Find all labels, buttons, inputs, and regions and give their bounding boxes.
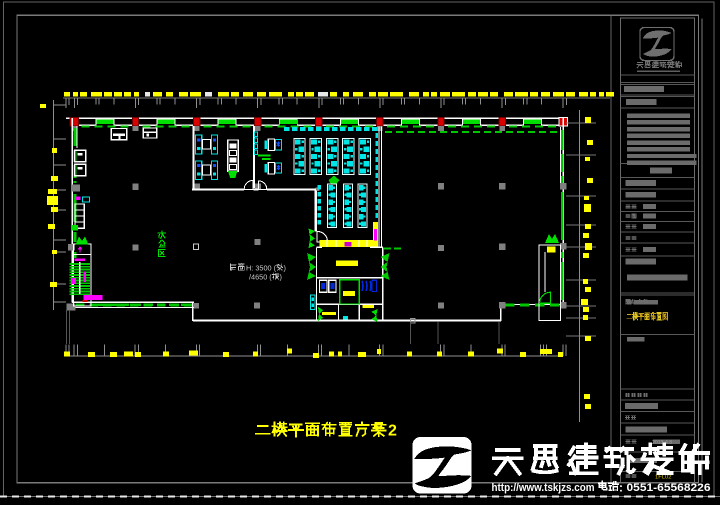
svg-text:2: 2 (388, 423, 397, 440)
svg-text:2013.4.8: 2013.4.8 (652, 440, 672, 446)
svg-text:/4650 (: /4650 ( (249, 272, 272, 281)
svg-text:http://www.tskjzs.com: http://www.tskjzs.com (492, 482, 595, 494)
svg-text:): ) (284, 264, 286, 273)
svg-text:): ) (280, 272, 282, 281)
svg-text:0551-65568226: 0551-65568226 (627, 482, 711, 494)
svg-text:1FL02: 1FL02 (655, 475, 671, 481)
svg-text:H: 3500 (: H: 3500 ( (246, 264, 277, 273)
svg-text::: : (619, 480, 623, 494)
